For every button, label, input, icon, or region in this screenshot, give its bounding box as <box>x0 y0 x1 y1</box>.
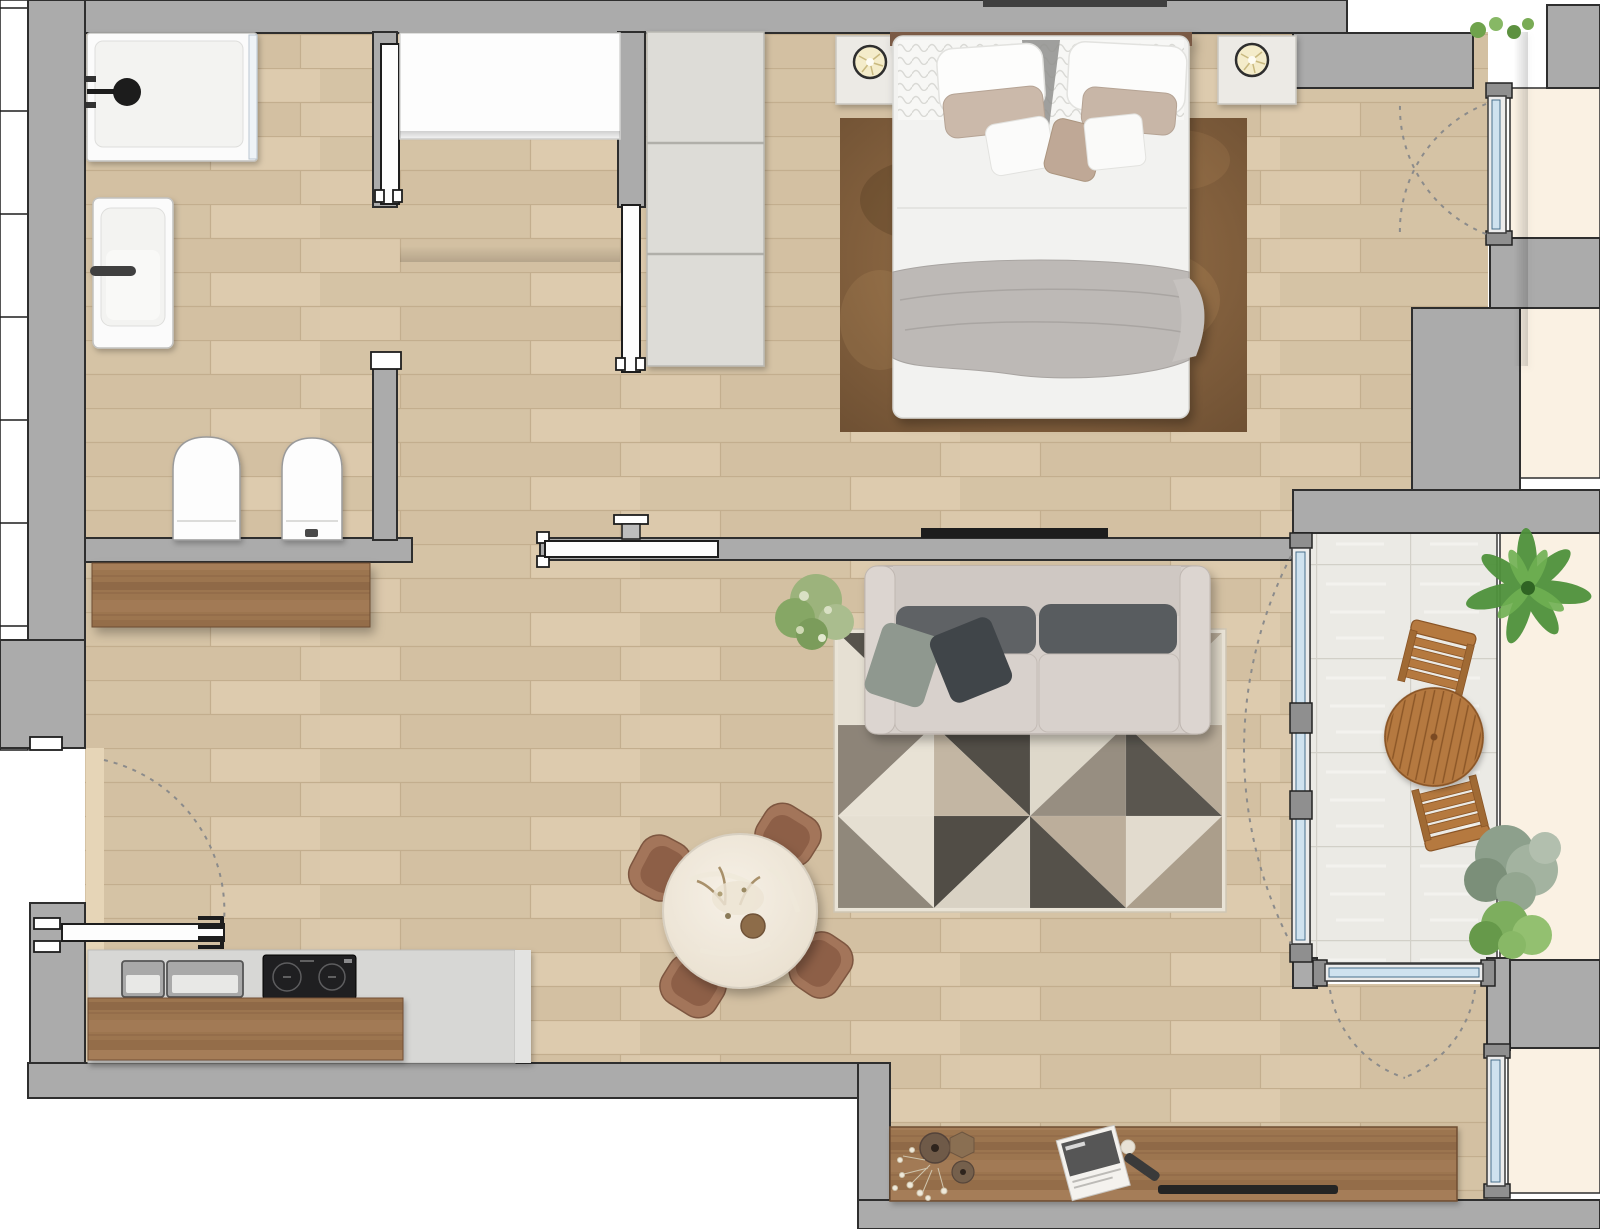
soundbar <box>1158 1185 1338 1194</box>
kitchen-island <box>88 998 403 1060</box>
kitchen <box>88 950 531 1063</box>
cooktop <box>263 955 356 999</box>
wall-corner-column-ne <box>1547 5 1600 88</box>
toilet <box>173 437 240 540</box>
wall-bathroom-south <box>85 538 412 562</box>
double-sink <box>122 961 243 997</box>
sofa <box>862 566 1210 734</box>
floor-plan-canvas: Apartment floor plan — top-down 2D rende… <box>0 0 1600 1229</box>
glass-mullion <box>1290 791 1312 819</box>
shower-glass-panel <box>249 35 257 159</box>
wall-bathroom-east-lower <box>373 360 397 540</box>
wall-east-column-mid <box>1510 960 1600 1048</box>
hex-pot <box>950 1132 974 1158</box>
wall-west-mid <box>0 640 85 748</box>
wall-east-band <box>1490 238 1600 308</box>
wall-north-east-band <box>1293 33 1473 88</box>
exterior-stair-strip <box>0 0 28 750</box>
exterior-sill-bottom-right <box>1508 1048 1600 1193</box>
pocket-door-leaf <box>545 541 718 557</box>
dining-table <box>663 834 817 988</box>
pocket-door-catch <box>371 352 401 369</box>
deco-ball <box>1121 1140 1135 1154</box>
floor-plan-stage: Apartment floor plan — top-down 2D rende… <box>0 0 1600 1229</box>
shower <box>86 33 257 161</box>
bed-blanket <box>893 260 1204 378</box>
bathtub-grab-bar <box>90 266 136 276</box>
wall-south-step <box>858 1063 890 1208</box>
table-vase <box>741 914 765 938</box>
wall-south-right <box>858 1200 1600 1229</box>
bathtub <box>90 198 173 348</box>
wall-balcony-north <box>1293 490 1600 533</box>
nightstand-right <box>1218 36 1296 104</box>
bidet-flush-button <box>305 529 318 537</box>
bidet <box>282 438 342 540</box>
wall-west-upper <box>28 0 85 645</box>
balcony-glass-wall <box>1290 533 1312 962</box>
double-bed <box>890 32 1204 418</box>
wall-south-left <box>28 1063 870 1098</box>
wall-bedroom-west <box>618 32 645 207</box>
sideboard <box>92 563 370 627</box>
media-sideboard <box>890 1125 1457 1201</box>
wall-tv <box>921 528 1108 538</box>
wall-shaft-column <box>1412 308 1520 490</box>
shower-head <box>113 78 141 106</box>
back-cushion <box>1039 604 1177 654</box>
north-window-strip <box>983 0 1167 7</box>
glass-mullion <box>1290 703 1312 733</box>
exterior-sill-right-1 <box>1520 308 1600 478</box>
